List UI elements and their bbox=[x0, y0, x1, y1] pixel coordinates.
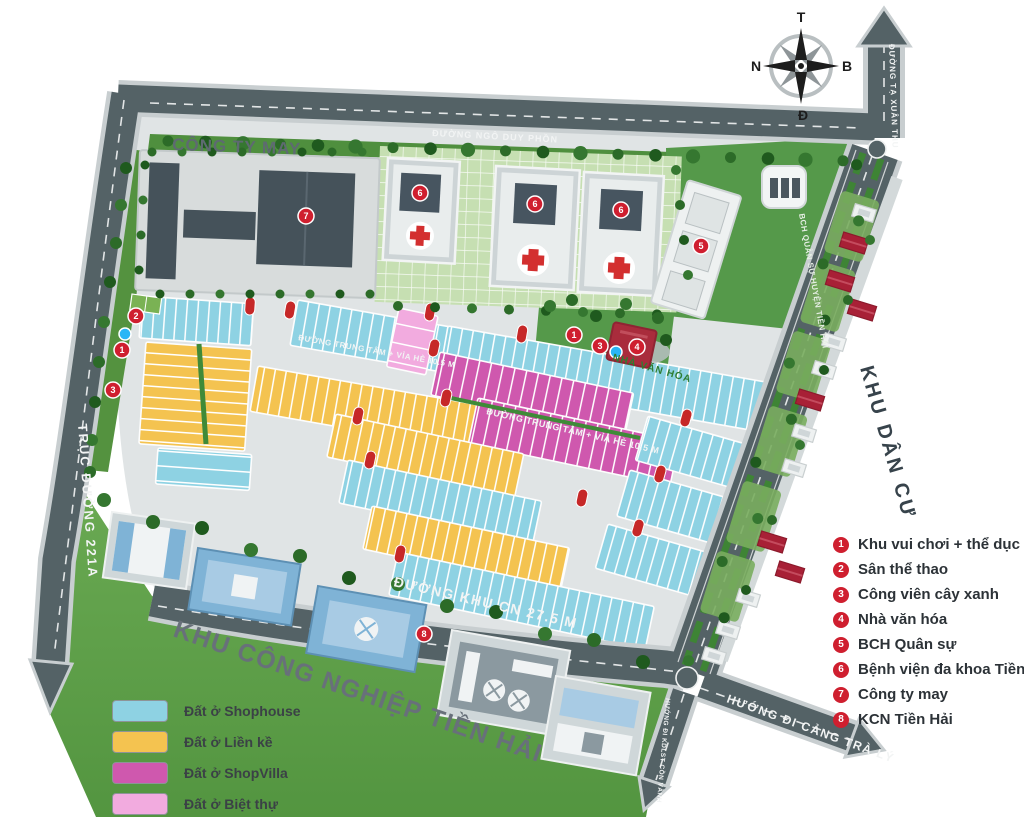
poi-legend-item: 4Nhà văn hóa bbox=[833, 611, 1024, 628]
tree-icon bbox=[649, 149, 662, 162]
poi-label: Bệnh viện đa khoa Tiền Hải bbox=[858, 661, 1024, 678]
poi-label: Công viên cây xanh bbox=[858, 586, 999, 603]
tree-icon bbox=[717, 556, 728, 567]
tree-icon bbox=[358, 148, 367, 157]
poi-marker: 7 bbox=[298, 208, 314, 224]
tree-icon bbox=[135, 266, 144, 275]
tree-icon bbox=[244, 543, 258, 557]
tree-icon bbox=[652, 312, 664, 324]
tree-icon bbox=[752, 513, 763, 524]
poi-label: Sân thể thao bbox=[858, 561, 948, 578]
zone-label: Đất ở Shophouse bbox=[184, 703, 301, 719]
tree-icon bbox=[795, 440, 805, 450]
cong-ty-may bbox=[135, 150, 380, 298]
svg-text:6: 6 bbox=[417, 188, 422, 198]
tree-icon bbox=[784, 358, 795, 369]
tree-icon bbox=[216, 290, 225, 299]
svg-text:6: 6 bbox=[532, 199, 537, 209]
poi-label: Khu vui chơi + thể dục bbox=[858, 536, 1020, 553]
poi-legend-item: 2Sân thể thao bbox=[833, 561, 1024, 578]
tree-icon bbox=[388, 142, 399, 153]
poi-marker: 6 bbox=[613, 202, 629, 218]
poi-label: KCN Tiền Hải bbox=[858, 711, 953, 728]
svg-text:5: 5 bbox=[698, 241, 703, 251]
poi-legend-item: 8KCN Tiền Hải bbox=[833, 711, 1024, 728]
poi-number-badge: 2 bbox=[833, 562, 849, 578]
zone-swatch bbox=[112, 793, 168, 815]
tree-icon bbox=[578, 307, 588, 317]
zone-legend-item: Đất ở Biệt thự bbox=[112, 793, 301, 815]
tree-icon bbox=[573, 146, 587, 160]
tree-icon bbox=[342, 571, 356, 585]
tree-icon bbox=[851, 159, 862, 170]
compass-top: T bbox=[797, 9, 806, 25]
tree-icon bbox=[620, 298, 632, 310]
zone-legend-item: Đất ở ShopVilla bbox=[112, 762, 301, 784]
tree-icon bbox=[719, 612, 730, 623]
compass-right: B bbox=[842, 58, 852, 74]
poi-marker: 3 bbox=[105, 382, 121, 398]
poi-marker: 1 bbox=[114, 342, 130, 358]
tree-icon bbox=[98, 316, 110, 328]
tree-icon bbox=[186, 290, 195, 299]
svg-text:4: 4 bbox=[634, 342, 639, 352]
zone-label: Đất ở Liền kề bbox=[184, 734, 273, 750]
tree-icon bbox=[615, 308, 625, 318]
house bbox=[775, 561, 804, 583]
tree-icon bbox=[843, 295, 853, 305]
tree-icon bbox=[679, 235, 689, 245]
poi-number-badge: 1 bbox=[833, 537, 849, 553]
poi-marker: 6 bbox=[527, 196, 543, 212]
tree-icon bbox=[566, 294, 578, 306]
tree-icon bbox=[544, 300, 556, 312]
label-khu-dan-cu: KHU DÂN CƯ bbox=[855, 363, 922, 522]
tree-icon bbox=[671, 165, 681, 175]
master-plan-map: 213766651348 CÔNG TY MAY ĐƯỜNG NGÔ DUY P… bbox=[0, 0, 1024, 817]
poi-marker: 4 bbox=[629, 339, 645, 355]
tree-icon bbox=[818, 258, 829, 269]
tree-icon bbox=[725, 152, 736, 163]
tree-icon bbox=[786, 414, 797, 425]
tree-icon bbox=[660, 334, 672, 346]
tree-icon bbox=[798, 153, 812, 167]
poi-legend-item: 5BCH Quân sự bbox=[833, 636, 1024, 653]
tree-icon bbox=[537, 146, 550, 159]
tree-icon bbox=[424, 142, 437, 155]
poi-number-badge: 7 bbox=[833, 687, 849, 703]
roundabout-top bbox=[868, 140, 886, 158]
svg-text:3: 3 bbox=[597, 341, 602, 351]
svg-text:1: 1 bbox=[571, 330, 576, 340]
poi-marker: 8 bbox=[416, 626, 432, 642]
tree-icon bbox=[104, 276, 116, 288]
tree-icon bbox=[675, 200, 685, 210]
svg-text:1: 1 bbox=[119, 345, 124, 355]
tree-icon bbox=[686, 149, 700, 163]
tree-icon bbox=[500, 145, 511, 156]
zone-swatch bbox=[112, 762, 168, 784]
tree-icon bbox=[819, 365, 829, 375]
svg-text:6: 6 bbox=[618, 205, 623, 215]
tree-icon bbox=[538, 627, 552, 641]
svg-text:7: 7 bbox=[303, 211, 308, 221]
zone-legend-item: Đất ở Liền kề bbox=[112, 731, 301, 753]
zone-label: Đất ở Biệt thự bbox=[184, 796, 278, 812]
tree-icon bbox=[683, 270, 693, 280]
poi-label: Công ty may bbox=[858, 686, 948, 703]
lot-tag bbox=[244, 297, 255, 316]
arrow-north-road bbox=[858, 8, 910, 46]
factory-icon bbox=[762, 166, 806, 208]
poi-legend: 1Khu vui chơi + thể dục2Sân thể thao3Côn… bbox=[833, 536, 1024, 728]
tree-icon bbox=[89, 396, 101, 408]
tree-icon bbox=[750, 457, 761, 468]
roundabout-bottom bbox=[676, 667, 698, 689]
poi-number-badge: 3 bbox=[833, 587, 849, 603]
tree-icon bbox=[590, 310, 602, 322]
poi-legend-item: 7Công ty may bbox=[833, 686, 1024, 703]
svg-text:8: 8 bbox=[421, 629, 426, 639]
tree-icon bbox=[613, 149, 624, 160]
compass-left: N bbox=[751, 58, 761, 74]
tree-icon bbox=[156, 290, 165, 299]
tree-icon bbox=[276, 290, 285, 299]
poi-number-badge: 5 bbox=[833, 637, 849, 653]
tree-icon bbox=[767, 515, 777, 525]
tree-icon bbox=[120, 162, 132, 174]
tree-icon bbox=[865, 235, 875, 245]
tree-icon bbox=[146, 515, 160, 529]
zone-label: Đất ở ShopVilla bbox=[184, 765, 288, 781]
poi-number-badge: 8 bbox=[833, 712, 849, 728]
tree-icon bbox=[336, 290, 345, 299]
tree-icon bbox=[467, 303, 477, 313]
tree-icon bbox=[93, 356, 105, 368]
compass-bottom: Đ bbox=[798, 107, 808, 123]
tree-icon bbox=[195, 521, 209, 535]
tree-icon bbox=[137, 231, 146, 240]
tree-icon bbox=[306, 290, 315, 299]
tree-icon bbox=[312, 139, 325, 152]
zone-legend-item: Đất ở Shophouse bbox=[112, 700, 301, 722]
tree-icon bbox=[393, 301, 403, 311]
info-dot bbox=[119, 328, 131, 340]
poi-marker: 6 bbox=[412, 185, 428, 201]
poi-marker: 5 bbox=[693, 238, 709, 254]
tree-icon bbox=[141, 161, 150, 170]
tree-icon bbox=[110, 237, 122, 249]
tree-icon bbox=[853, 215, 864, 226]
poi-number-badge: 6 bbox=[833, 662, 849, 678]
tree-icon bbox=[97, 493, 111, 507]
tree-icon bbox=[683, 655, 694, 666]
zone-legend: Đất ở ShophouseĐất ở Liền kềĐất ở ShopVi… bbox=[112, 700, 301, 815]
tree-icon bbox=[148, 148, 157, 157]
tree-icon bbox=[293, 549, 307, 563]
tree-icon bbox=[636, 655, 650, 669]
tree-icon bbox=[115, 199, 127, 211]
poi-marker: 2 bbox=[128, 308, 144, 324]
poi-marker: 3 bbox=[592, 338, 608, 354]
tree-icon bbox=[504, 305, 514, 315]
zone-swatch bbox=[112, 731, 168, 753]
poi-legend-item: 1Khu vui chơi + thể dục bbox=[833, 536, 1024, 553]
tree-icon bbox=[461, 143, 475, 157]
poi-legend-item: 3Công viên cây xanh bbox=[833, 586, 1024, 603]
tree-icon bbox=[762, 152, 775, 165]
tree-icon bbox=[838, 155, 849, 166]
tree-icon bbox=[741, 585, 751, 595]
tree-icon bbox=[328, 148, 337, 157]
tree-icon bbox=[366, 290, 375, 299]
svg-text:2: 2 bbox=[133, 311, 138, 321]
tree-icon bbox=[139, 196, 148, 205]
poi-label: BCH Quân sự bbox=[858, 636, 956, 653]
zone-swatch bbox=[112, 700, 168, 722]
poi-number-badge: 4 bbox=[833, 612, 849, 628]
tree-icon bbox=[587, 633, 601, 647]
svg-text:3: 3 bbox=[110, 385, 115, 395]
poi-legend-item: 6Bệnh viện đa khoa Tiền Hải bbox=[833, 661, 1024, 678]
tree-icon bbox=[246, 290, 255, 299]
poi-label: Nhà văn hóa bbox=[858, 611, 947, 628]
poi-marker: 1 bbox=[566, 327, 582, 343]
tree-icon bbox=[430, 302, 440, 312]
